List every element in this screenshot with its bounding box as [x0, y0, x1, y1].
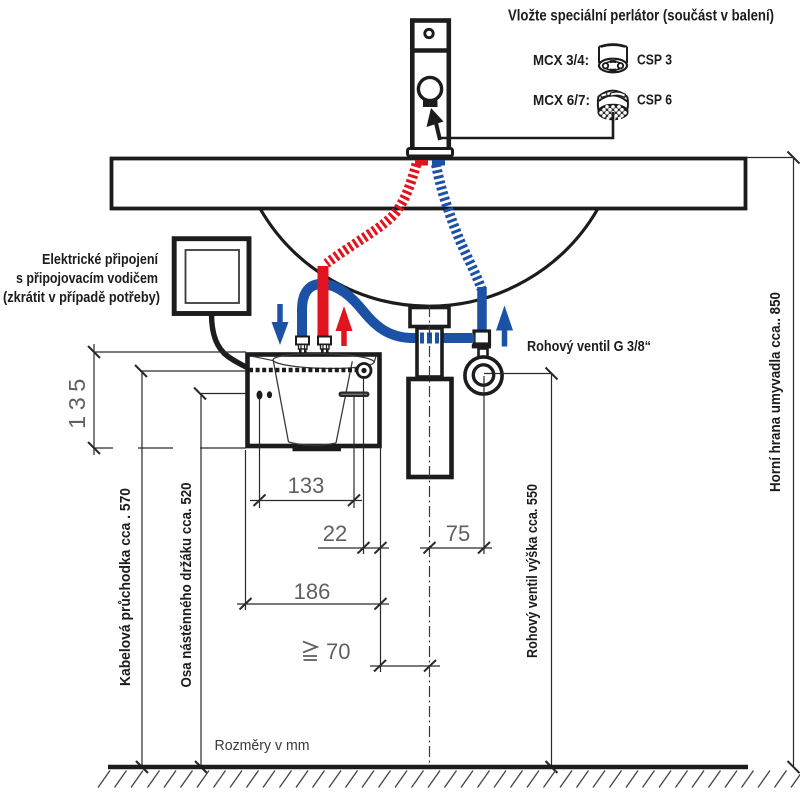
svg-text:Rohový ventil výška cca. 550: Rohový ventil výška cca. 550: [524, 484, 541, 658]
svg-text:186: 186: [294, 579, 331, 604]
svg-text:Kabelová průchodka cca . 570: Kabelová průchodka cca . 570: [117, 488, 134, 686]
svg-text:Rohový ventil G 3/8“: Rohový ventil G 3/8“: [527, 338, 651, 355]
svg-text:75: 75: [446, 521, 470, 546]
svg-text:s připojovacím vodičem: s připojovacím vodičem: [16, 270, 158, 287]
svg-text:135: 135: [64, 373, 90, 429]
svg-text:Rozměry v mm: Rozměry v mm: [215, 738, 310, 754]
svg-text:Osa nástěnného držáku cca. 520: Osa nástěnného držáku cca. 520: [178, 483, 195, 688]
svg-text:22: 22: [323, 521, 347, 546]
svg-text:133: 133: [288, 473, 325, 498]
svg-text:CSP 3: CSP 3: [637, 53, 672, 69]
svg-text:70: 70: [326, 639, 350, 664]
svg-text:Horní hrana umyvadla cca.. 850: Horní hrana umyvadla cca.. 850: [767, 292, 784, 492]
svg-text:MCX 3/4:: MCX 3/4:: [533, 52, 589, 69]
svg-text:(zkrátit v případě potřeby): (zkrátit v případě potřeby): [3, 289, 160, 306]
svg-text:MCX 6/7:: MCX 6/7:: [533, 92, 590, 109]
svg-text:Vložte speciální perlátor (sou: Vložte speciální perlátor (součást v bal…: [508, 8, 774, 25]
svg-text:Elektrické připojení: Elektrické připojení: [42, 251, 159, 268]
svg-text:CSP 6: CSP 6: [637, 93, 672, 109]
